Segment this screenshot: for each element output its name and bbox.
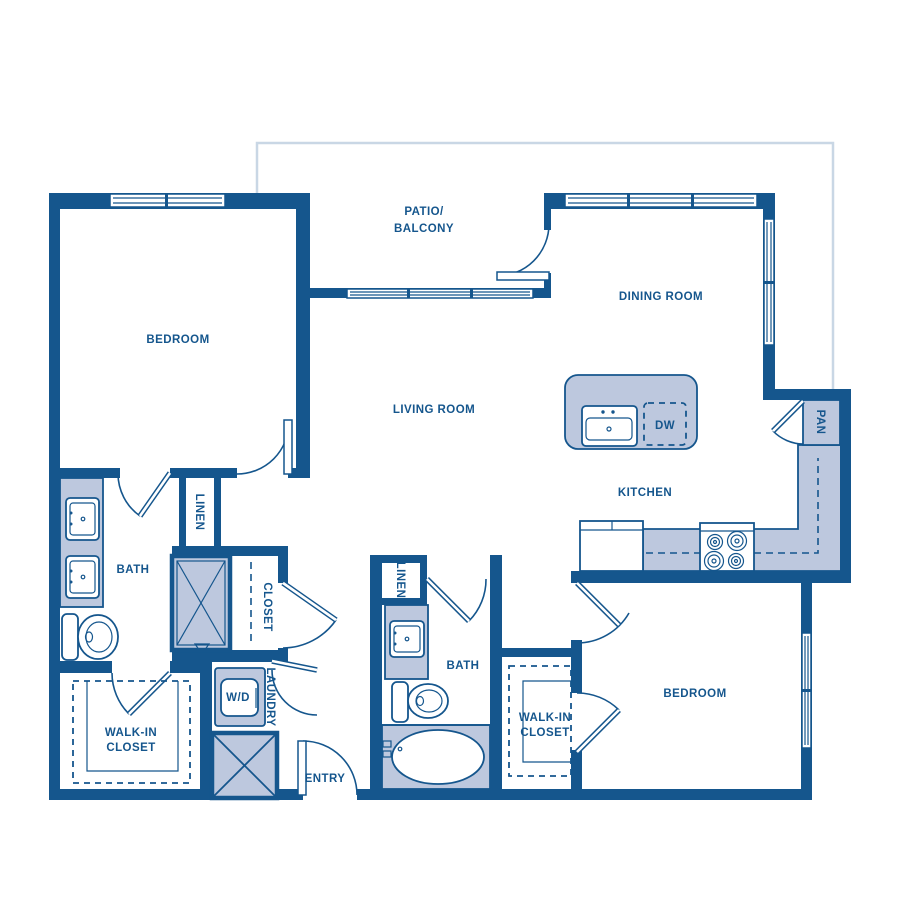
bath1-label: BATH [117,564,150,576]
walkin1-label-line2: CLOSET [106,742,155,754]
stove [700,523,754,571]
walkin1-door [112,673,170,714]
bath2-toilet [392,682,448,722]
window-dining-right [764,219,774,345]
kitchen-label: KITCHEN [618,487,672,499]
bath1-sink-1 [66,498,99,540]
bath2-label: BATH [447,660,480,672]
laundry-door [272,661,317,715]
bath1-fixtures [62,498,251,660]
walls [49,193,851,800]
bath1-toilet [62,614,118,660]
walkin1-label-line1: WALK-IN [105,727,157,739]
patio-label-line1: PATIO/ [404,206,444,218]
bath2-door [427,579,486,621]
laundry-label: LAUNDRY [264,668,276,727]
window-bedroom1 [110,194,225,207]
dining-label: DINING ROOM [619,291,703,303]
window-dining-top [565,194,757,207]
entry-label: ENTRY [305,773,346,785]
island-sink [582,406,637,446]
entry-door [298,741,357,795]
bath2-fixtures [382,621,490,784]
bedroom2-label: BEDROOM [663,688,726,700]
walkin2-label-line2: CLOSET [520,727,569,739]
utility-shaft [212,733,277,798]
window-living [347,289,533,298]
dishwasher-label: DW [655,420,675,432]
window-bedroom2 [802,633,811,748]
pantry-door [773,401,803,444]
floor-plan-svg: DW [0,0,900,900]
bedroom1-label: BEDROOM [146,334,209,346]
washer-dryer-unit: W/D [215,668,265,726]
patio-label-line2: BALCONY [394,223,454,235]
floor-plan: DW [0,0,900,900]
walkin2-label-line1: WALK-IN [519,712,571,724]
bath1-sink-2 [66,556,99,598]
bath2-sink [390,621,424,657]
hall-closet-door [283,583,336,648]
hall-closet-label: CLOSET [261,582,273,631]
bath1-door [118,473,170,516]
refrigerator [580,521,643,571]
washer-dryer-label: W/D [226,692,250,704]
pantry-label: PAN [814,410,826,435]
walkin2-door [577,693,619,752]
balcony-outline [257,143,833,392]
bedroom2-door [577,583,629,643]
patio-door [497,224,549,280]
bedroom1-door [237,420,292,474]
linen2-label: LINEN [394,562,406,599]
shower [172,556,230,654]
living-label: LIVING ROOM [393,404,475,416]
linen1-label: LINEN [193,494,205,531]
